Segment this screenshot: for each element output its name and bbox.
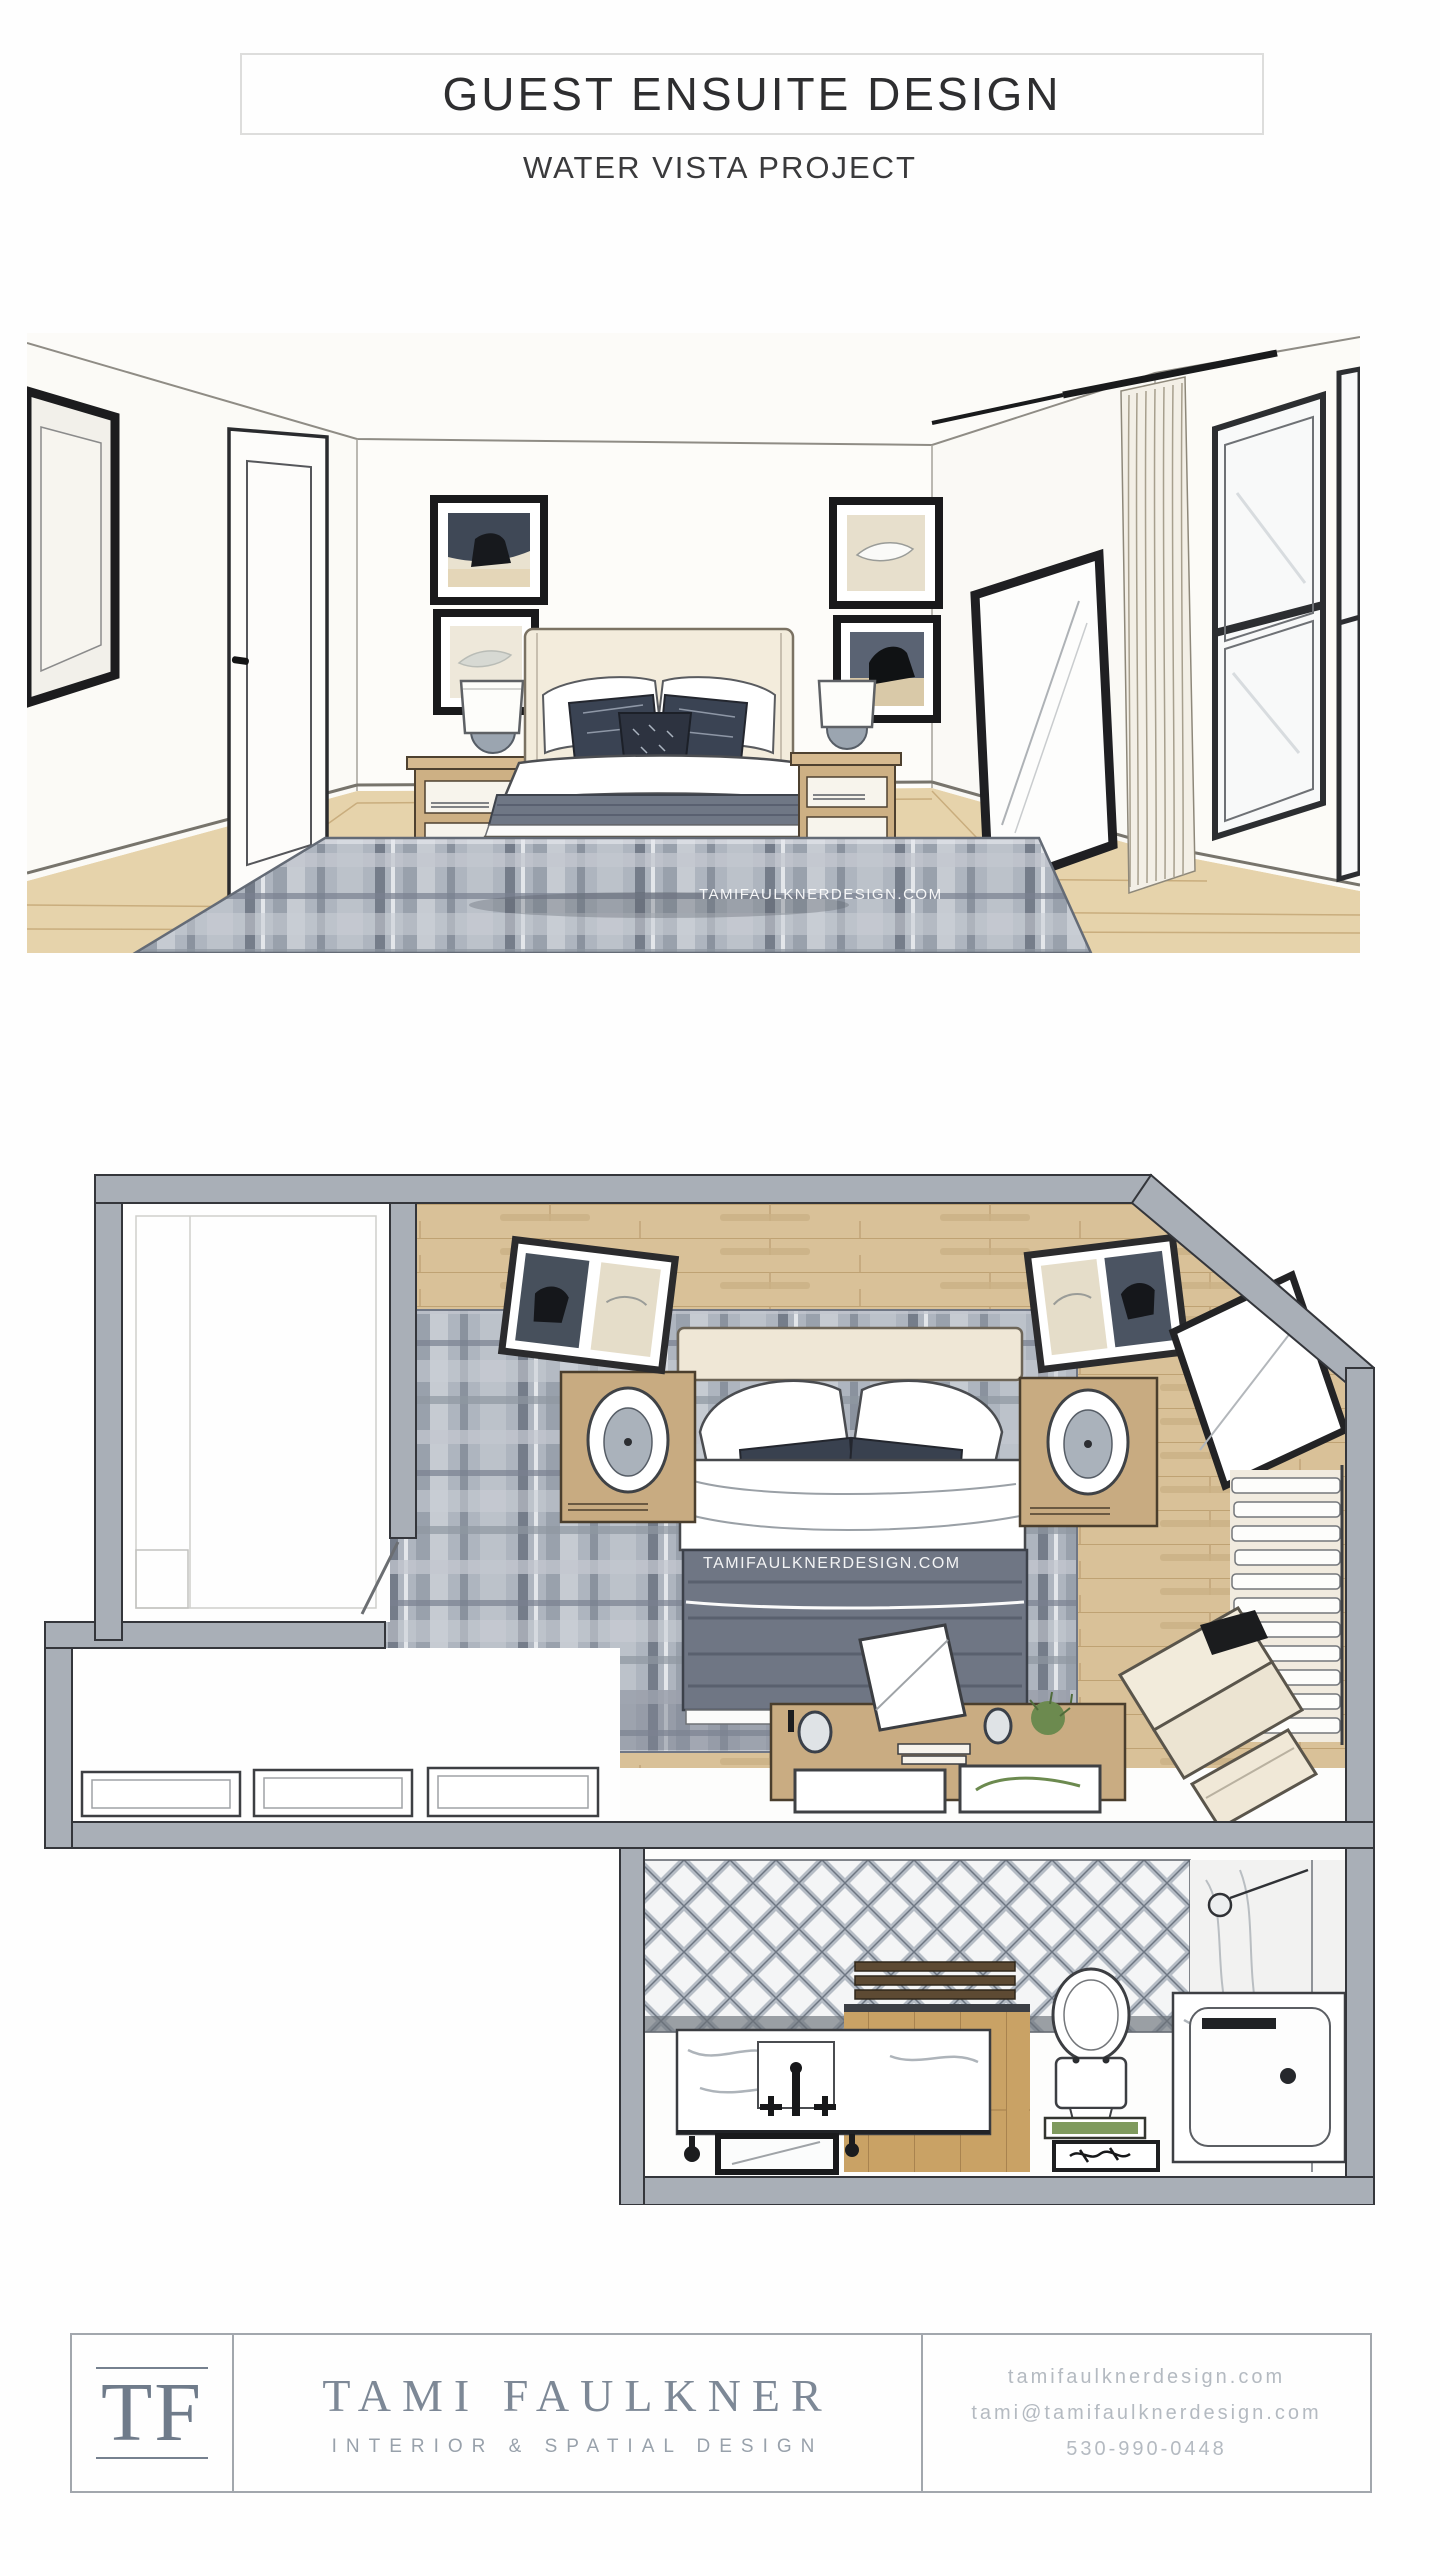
contact-block: tamifaulknerdesign.com tami@tamifaulkner… [923,2335,1370,2491]
plan-bath-mat-motif [1054,2142,1158,2170]
floor-plan-rendering: TAMIFAULKNERDESIGN.COM [40,1170,1375,2205]
blanket-band [489,795,829,825]
tf-logo: TF [96,2367,208,2459]
website-link[interactable]: tamifaulknerdesign.com [1008,2366,1285,2389]
plan-nightstand-right [1020,1378,1157,1526]
plan-entry [72,1648,620,1822]
logo-initials: TF [96,2369,208,2457]
curtain-panel [1121,377,1195,893]
studio-name: TAMI FAULKNER [322,2369,832,2422]
plan-towel-ladder [855,1962,1015,1999]
email-link[interactable]: tami@tamifaulknerdesign.com [971,2402,1321,2425]
watermark-floor-plan: TAMIFAULKNERDESIGN.COM [703,1555,961,1572]
left-wall-art-frame [27,391,115,703]
plan-closet-room [122,1203,398,1622]
phone-number: 530-990-0448 [1066,2438,1227,2461]
logo-box: TF [72,2335,234,2491]
studio-tagline: INTERIOR & SPATIAL DESIGN [332,2436,824,2458]
bedroom-door [229,429,327,897]
plan-art-left [502,1240,675,1371]
presentation-page: GUEST ENSUITE DESIGN WATER VISTA PROJECT [0,0,1440,2560]
plan-floor-mat [795,1770,945,1812]
project-subtitle: WATER VISTA PROJECT [0,150,1440,186]
window-far-right [1339,369,1360,879]
perspective-rendering: TAMIFAULKNERDESIGN.COM [27,333,1360,953]
studio-identity: TAMI FAULKNER INTERIOR & SPATIAL DESIGN [234,2335,923,2491]
title-box: GUEST ENSUITE DESIGN [240,53,1264,135]
plan-bathtub [1173,1993,1345,2162]
footer-brand-bar: TF TAMI FAULKNER INTERIOR & SPATIAL DESI… [70,2333,1372,2493]
plan-headboard [678,1328,1022,1380]
window-right [1215,395,1323,837]
page-title: GUEST ENSUITE DESIGN [443,67,1062,121]
plan-nightstand-left [561,1372,695,1522]
plan-bath-mat-green [1052,2122,1138,2134]
plan-art-right [1027,1238,1186,1370]
watermark-perspective: TAMIFAULKNERDESIGN.COM [699,886,943,903]
plan-shower-head [1209,1894,1231,1916]
plan-bathroom [642,1850,1346,2177]
